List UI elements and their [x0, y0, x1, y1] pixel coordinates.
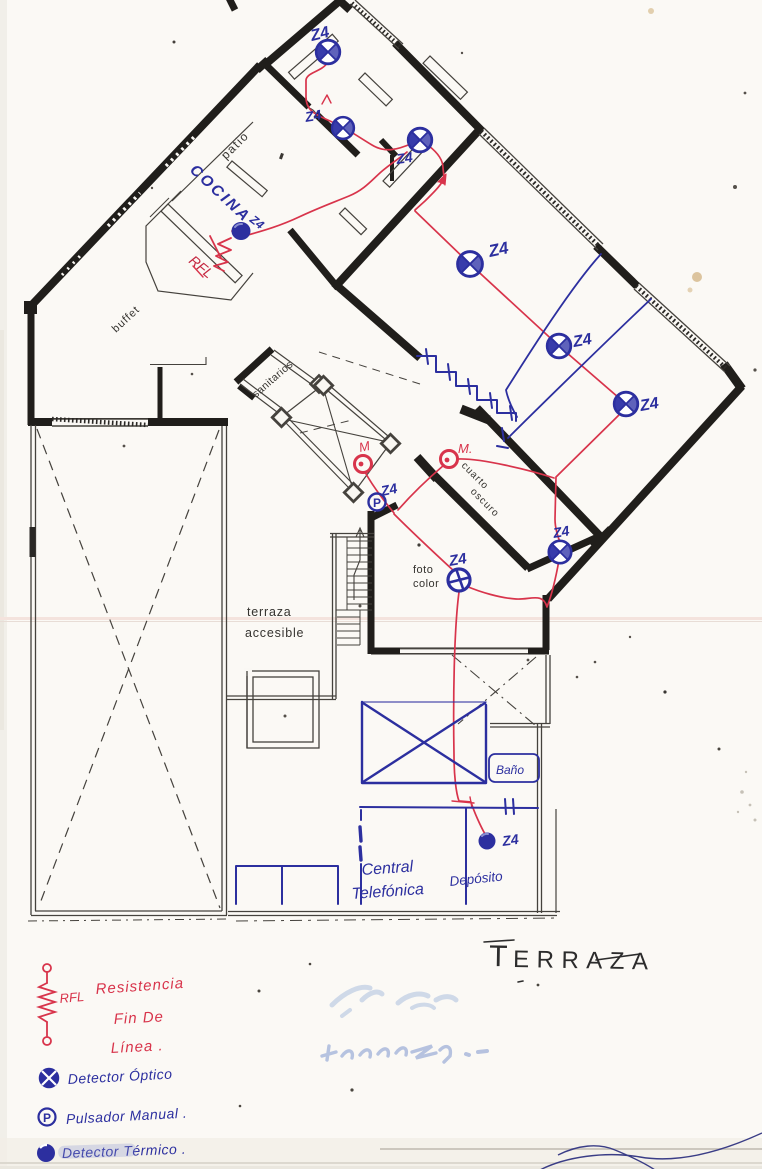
svg-text:M.: M. [458, 441, 472, 456]
svg-text:P: P [43, 1111, 51, 1125]
svg-text:Z4: Z4 [447, 550, 469, 570]
svg-text:foto: foto [413, 564, 433, 576]
svg-text:Z4: Z4 [571, 331, 593, 351]
svg-text:Línea .: Línea . [110, 1037, 164, 1057]
svg-text:Fin De: Fin De [113, 1008, 164, 1028]
svg-text:Z4: Z4 [394, 149, 414, 167]
svg-text:Z4: Z4 [303, 106, 323, 125]
svg-text:accesible: accesible [245, 626, 304, 640]
svg-text:Z4: Z4 [500, 831, 520, 849]
svg-text:Z4: Z4 [638, 395, 660, 415]
svg-text:Central: Central [361, 858, 414, 879]
svg-text:P: P [373, 496, 381, 510]
svg-text:RFL: RFL [59, 989, 85, 1006]
svg-text:Baño: Baño [496, 763, 524, 777]
svg-text:Z4: Z4 [551, 522, 571, 541]
svg-text:terraza: terraza [247, 605, 292, 619]
svg-text:color: color [413, 578, 439, 590]
svg-text:T: T [489, 940, 513, 973]
svg-text:ERRAZA: ERRAZA [513, 946, 656, 975]
